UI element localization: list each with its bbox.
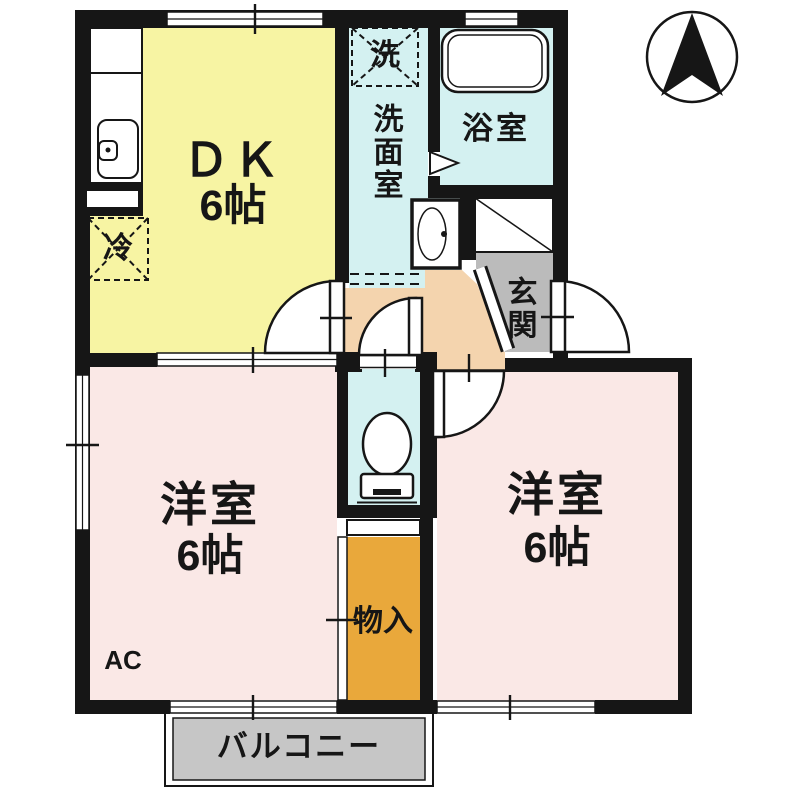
shoe-cabinet — [475, 198, 553, 252]
compass-north-icon — [647, 12, 737, 102]
toilet-icon — [357, 413, 417, 503]
dk-room-sliding-door — [157, 353, 337, 366]
hallway-floor-2 — [437, 352, 505, 371]
western-left-floor — [90, 360, 337, 700]
bathtub-icon — [442, 30, 548, 92]
balcony-outline — [165, 712, 433, 786]
left-wall-window — [76, 375, 89, 530]
dk-top-window — [167, 12, 323, 26]
kitchen-stub-opening — [87, 191, 138, 207]
storage-floor — [347, 537, 420, 700]
floor-plan: ＤＫ 6帖 洗 洗面室 浴室 玄関 洋室 6帖 洋室 6帖 物入 バルコニー 冷… — [0, 0, 800, 800]
bathroom-top-window — [465, 12, 518, 26]
kitchen-counter — [90, 28, 142, 183]
floor-plan-drawing — [0, 0, 800, 800]
storage-top-door — [347, 520, 420, 535]
washbasin-icon — [412, 200, 460, 268]
right-balcony-window — [437, 701, 595, 713]
storage-side-door — [338, 537, 347, 700]
